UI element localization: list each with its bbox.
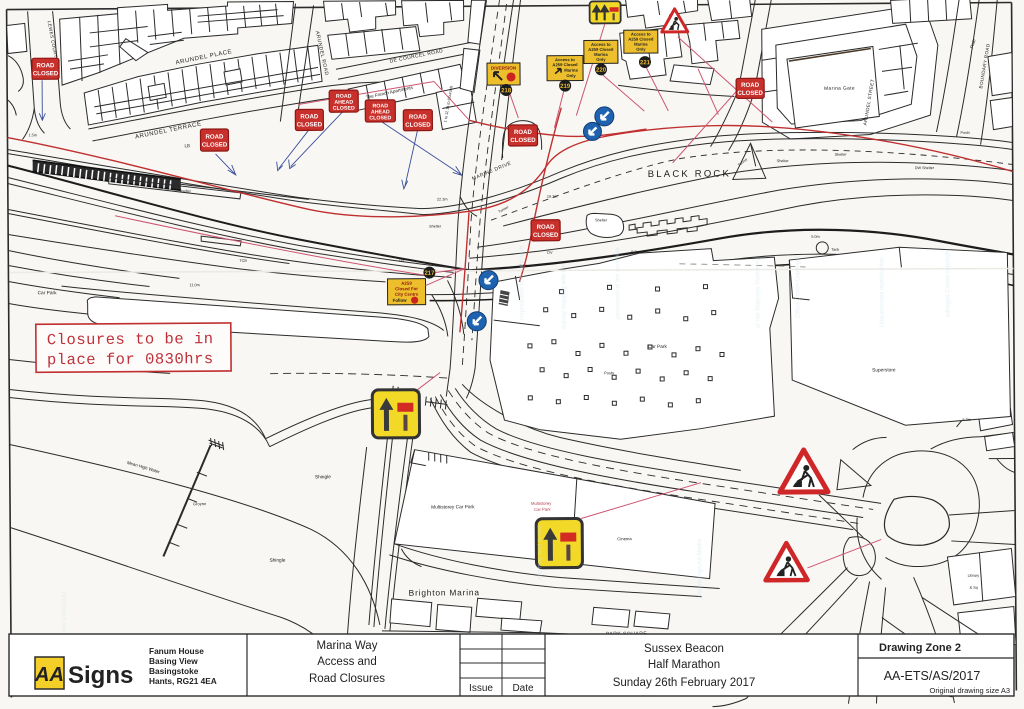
svg-text:place for 0830hrs: place for 0830hrs	[47, 350, 214, 369]
svg-text:Office Crown Copyright: Office Crown Copyright	[795, 256, 801, 318]
svg-text:Date: Date	[512, 683, 534, 694]
svg-text:Road Closures: Road Closures	[309, 673, 385, 685]
svg-text:ROAD: ROAD	[741, 82, 760, 89]
svg-text:& Sq: & Sq	[970, 586, 978, 590]
svg-text:ROAD: ROAD	[514, 129, 533, 136]
svg-text:Shelter: Shelter	[835, 153, 848, 157]
svg-text:Tank: Tank	[831, 248, 839, 252]
svg-text:Issue: Issue	[469, 683, 493, 694]
svg-text:CLOSED: CLOSED	[737, 90, 763, 97]
svg-text:Cinema: Cinema	[617, 536, 632, 541]
svg-text:Closures to be in: Closures to be in	[47, 330, 214, 349]
svg-text:Unauthorised reproduction: Unauthorised reproduction	[879, 257, 885, 328]
svg-text:CLOSED: CLOSED	[533, 232, 559, 239]
svg-text:Fanum House: Fanum House	[149, 646, 204, 656]
svg-text:Sussex Beacon: Sussex Beacon	[644, 643, 724, 655]
svg-text:DW Shelter: DW Shelter	[915, 166, 935, 170]
svg-text:Survey mapping with the: Survey mapping with the	[561, 263, 567, 329]
svg-text:Access and: Access and	[317, 656, 376, 668]
svg-text:CLOSED: CLOSED	[510, 137, 536, 144]
svg-text:5.2m: 5.2m	[962, 418, 970, 422]
svg-text:Posts: Posts	[604, 370, 614, 375]
svg-text:Brighton Marina: Brighton Marina	[409, 587, 480, 597]
svg-text:Superstore: Superstore	[872, 367, 896, 373]
svg-text:Multistorey Car Park: Multistorey Car Park	[431, 504, 475, 510]
svg-text:CLOSED: CLOSED	[297, 121, 323, 128]
svg-text:CLOSED: CLOSED	[369, 115, 391, 121]
svg-text:CLOSED: CLOSED	[333, 106, 355, 112]
svg-text:Basingstoke: Basingstoke	[149, 666, 199, 676]
svg-text:and may lead to civil: and may lead to civil	[537, 525, 543, 579]
svg-text:Marina Gate: Marina Gate	[824, 86, 855, 92]
svg-text:Posts: Posts	[960, 131, 970, 135]
svg-text:Groyne: Groyne	[193, 501, 207, 506]
svg-text:infringes Crown copyright: infringes Crown copyright	[945, 249, 951, 317]
svg-text:1.5m: 1.5m	[28, 133, 36, 137]
svg-text:Signs: Signs	[68, 662, 133, 689]
svg-text:220: 220	[596, 68, 607, 74]
svg-text:DIVERSION: DIVERSION	[491, 65, 517, 70]
svg-text:19.2m: 19.2m	[547, 195, 558, 199]
svg-text:Sunday 26th February 2017: Sunday 26th February 2017	[613, 677, 756, 689]
svg-text:Car Park: Car Park	[38, 290, 58, 296]
svg-text:CLOSED: CLOSED	[405, 122, 431, 129]
svg-text:AA-ETS/AS/2017: AA-ETS/AS/2017	[884, 669, 981, 683]
svg-text:218: 218	[501, 88, 512, 94]
svg-text:Car Park: Car Park	[648, 344, 668, 350]
svg-text:ROAD: ROAD	[205, 134, 224, 141]
svg-text:ROAD: ROAD	[36, 62, 55, 69]
svg-text:BLACK ROCK: BLACK ROCK	[648, 168, 731, 180]
svg-text:Only: Only	[636, 47, 646, 52]
svg-text:Marina Way: Marina Way	[317, 640, 378, 652]
svg-text:Car Park: Car Park	[534, 507, 551, 512]
svg-text:Shelter: Shelter	[429, 224, 442, 228]
svg-text:DV: DV	[547, 251, 553, 255]
svg-text:Only: Only	[596, 57, 606, 62]
svg-text:DV: DV	[399, 259, 405, 263]
svg-text:221: 221	[640, 60, 651, 66]
svg-text:Follow: Follow	[393, 298, 408, 303]
svg-text:Only: Only	[566, 73, 576, 78]
svg-text:Original drawing size A3: Original drawing size A3	[930, 686, 1010, 695]
svg-text:Shingle: Shingle	[315, 474, 331, 480]
svg-text:217: 217	[424, 271, 435, 277]
svg-text:ROAD: ROAD	[409, 114, 428, 121]
svg-text:A259: A259	[401, 281, 412, 286]
svg-text:Shelter: Shelter	[179, 189, 192, 193]
svg-text:Half Marathon: Half Marathon	[648, 659, 720, 671]
svg-text:219: 219	[560, 84, 571, 90]
svg-text:Basing View: Basing View	[149, 656, 198, 666]
svg-text:Marina: Marina	[564, 68, 578, 73]
svg-text:proceedings AA Media: proceedings AA Media	[697, 538, 703, 598]
svg-text:Multistorey: Multistorey	[531, 501, 552, 506]
svg-text:Closed For: Closed For	[395, 286, 418, 291]
svg-text:Shingle: Shingle	[269, 558, 285, 564]
svg-text:Hants, RG21 4EA: Hants, RG21 4EA	[149, 676, 217, 686]
svg-text:22.3m: 22.3m	[437, 197, 448, 201]
svg-text:A259 Closed: A259 Closed	[552, 62, 578, 67]
svg-text:5.3m: 5.3m	[631, 250, 639, 254]
svg-text:5.0m: 5.0m	[811, 235, 819, 239]
svg-text:Shelter: Shelter	[777, 159, 790, 163]
svg-text:11.0m: 11.0m	[189, 283, 199, 287]
svg-text:of Her Majestys Stationery: of Her Majestys Stationery	[755, 258, 761, 328]
svg-text:CLOSED: CLOSED	[202, 141, 228, 148]
svg-text:permission of the controller: permission of the controller	[615, 247, 622, 319]
svg-text:Shelter: Shelter	[595, 218, 608, 222]
svg-text:Drawing Zone 2: Drawing Zone 2	[879, 642, 961, 654]
svg-text:ROAD: ROAD	[537, 224, 556, 231]
svg-text:AA: AA	[34, 664, 64, 686]
svg-text:CLOSED: CLOSED	[33, 70, 59, 77]
svg-text:TCB: TCB	[239, 259, 247, 263]
svg-text:Library: Library	[968, 574, 980, 578]
svg-text:LB: LB	[185, 143, 191, 148]
svg-text:City Centre: City Centre	[395, 292, 419, 297]
svg-text:Reproduced from Ordnance: Reproduced from Ordnance	[519, 245, 526, 320]
svg-text:ROAD: ROAD	[300, 113, 319, 120]
